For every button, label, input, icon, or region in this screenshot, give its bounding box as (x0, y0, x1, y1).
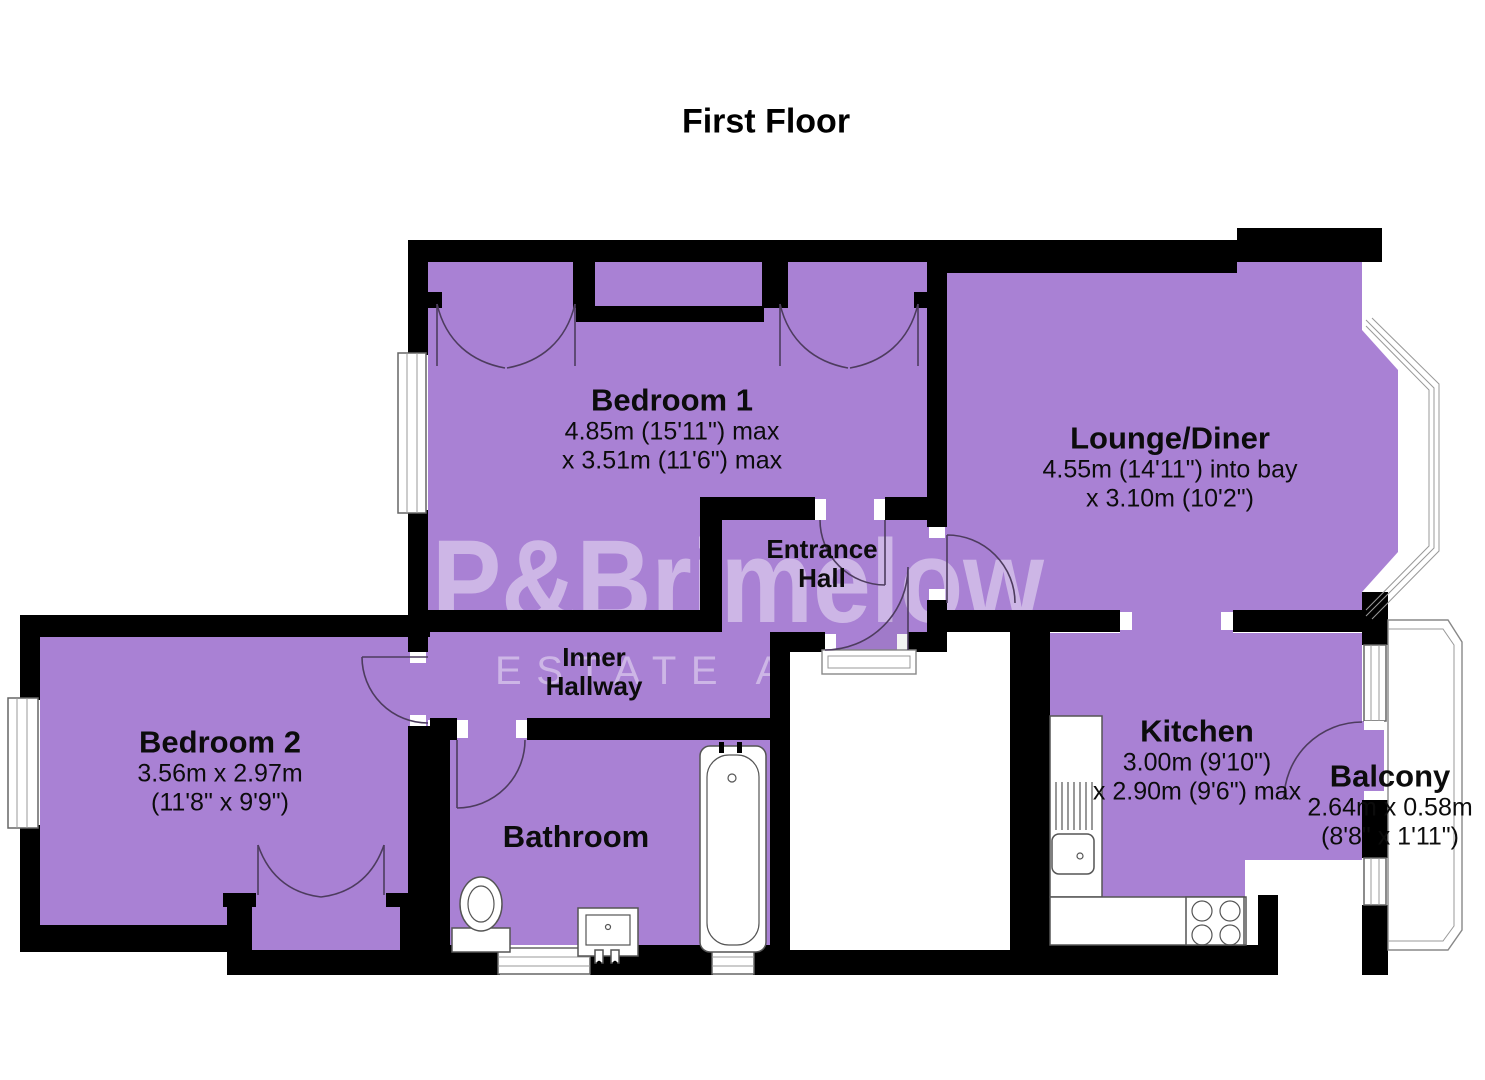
room-dim: x 2.90m (9'6") max (1093, 777, 1301, 806)
room-label-lounge-diner: Lounge/Diner 4.55m (14'11") into bay x 3… (1043, 421, 1298, 512)
front-door-threshold (822, 650, 916, 674)
bathroom-window-left (498, 948, 590, 974)
room-dim: 4.85m (15'11") max (562, 418, 782, 447)
room-label-balcony: Balcony 2.64m x 0.58m (8'8" x 1'11") (1307, 759, 1472, 850)
bedroom1-window (398, 353, 426, 513)
room-label-bedroom2: Bedroom 2 3.56m x 2.97m (11'8" x 9'9") (137, 725, 302, 816)
room-name: Balcony (1307, 759, 1472, 793)
room-label-bathroom: Bathroom (503, 820, 649, 854)
bathroom-sink (578, 908, 638, 965)
room-name: Entrance (766, 535, 877, 564)
kitchen-balcony-window-upper (1364, 645, 1386, 721)
room-name: Bedroom 2 (137, 725, 302, 759)
room-label-entrance-hall: Entrance Hall (766, 535, 877, 593)
floorplan-page: P&Brimelow ESTATE AGENTS (0, 0, 1485, 1080)
room-dim: x 3.51m (11'6") max (562, 446, 782, 475)
room-dim: 3.56m x 2.97m (137, 760, 302, 789)
room-name: Lounge/Diner (1043, 421, 1298, 455)
room-dim: (8'8" x 1'11") (1307, 822, 1472, 851)
room-dim: 2.64m x 0.58m (1307, 794, 1472, 823)
room-name: Kitchen (1093, 714, 1301, 748)
room-name: Hall (766, 564, 877, 593)
bathtub (700, 742, 766, 952)
room-dim: (11'8" x 9'9") (137, 788, 302, 817)
room-name: Hallway (546, 672, 643, 701)
room-label-kitchen: Kitchen 3.00m (9'10") x 2.90m (9'6") max (1093, 714, 1301, 805)
room-name: Inner (546, 643, 643, 672)
room-name: Bathroom (503, 820, 649, 854)
room-label-bedroom1: Bedroom 1 4.85m (15'11") max x 3.51m (11… (562, 383, 782, 474)
room-name: Bedroom 1 (562, 383, 782, 417)
room-dim: x 3.10m (10'2") (1043, 484, 1298, 513)
page-title-text: First Floor (682, 103, 850, 141)
bedroom2-window (8, 698, 38, 828)
floorplan-drawing: P&Brimelow ESTATE AGENTS (0, 0, 1485, 1080)
room-dim: 3.00m (9'10") (1093, 749, 1301, 778)
kitchen-hob (1186, 897, 1244, 945)
page-title: First Floor (682, 103, 850, 142)
room-label-inner-hallway: Inner Hallway (546, 643, 643, 701)
room-dim: 4.55m (14'11") into bay (1043, 456, 1298, 485)
kitchen-balcony-window-lower (1364, 858, 1386, 905)
